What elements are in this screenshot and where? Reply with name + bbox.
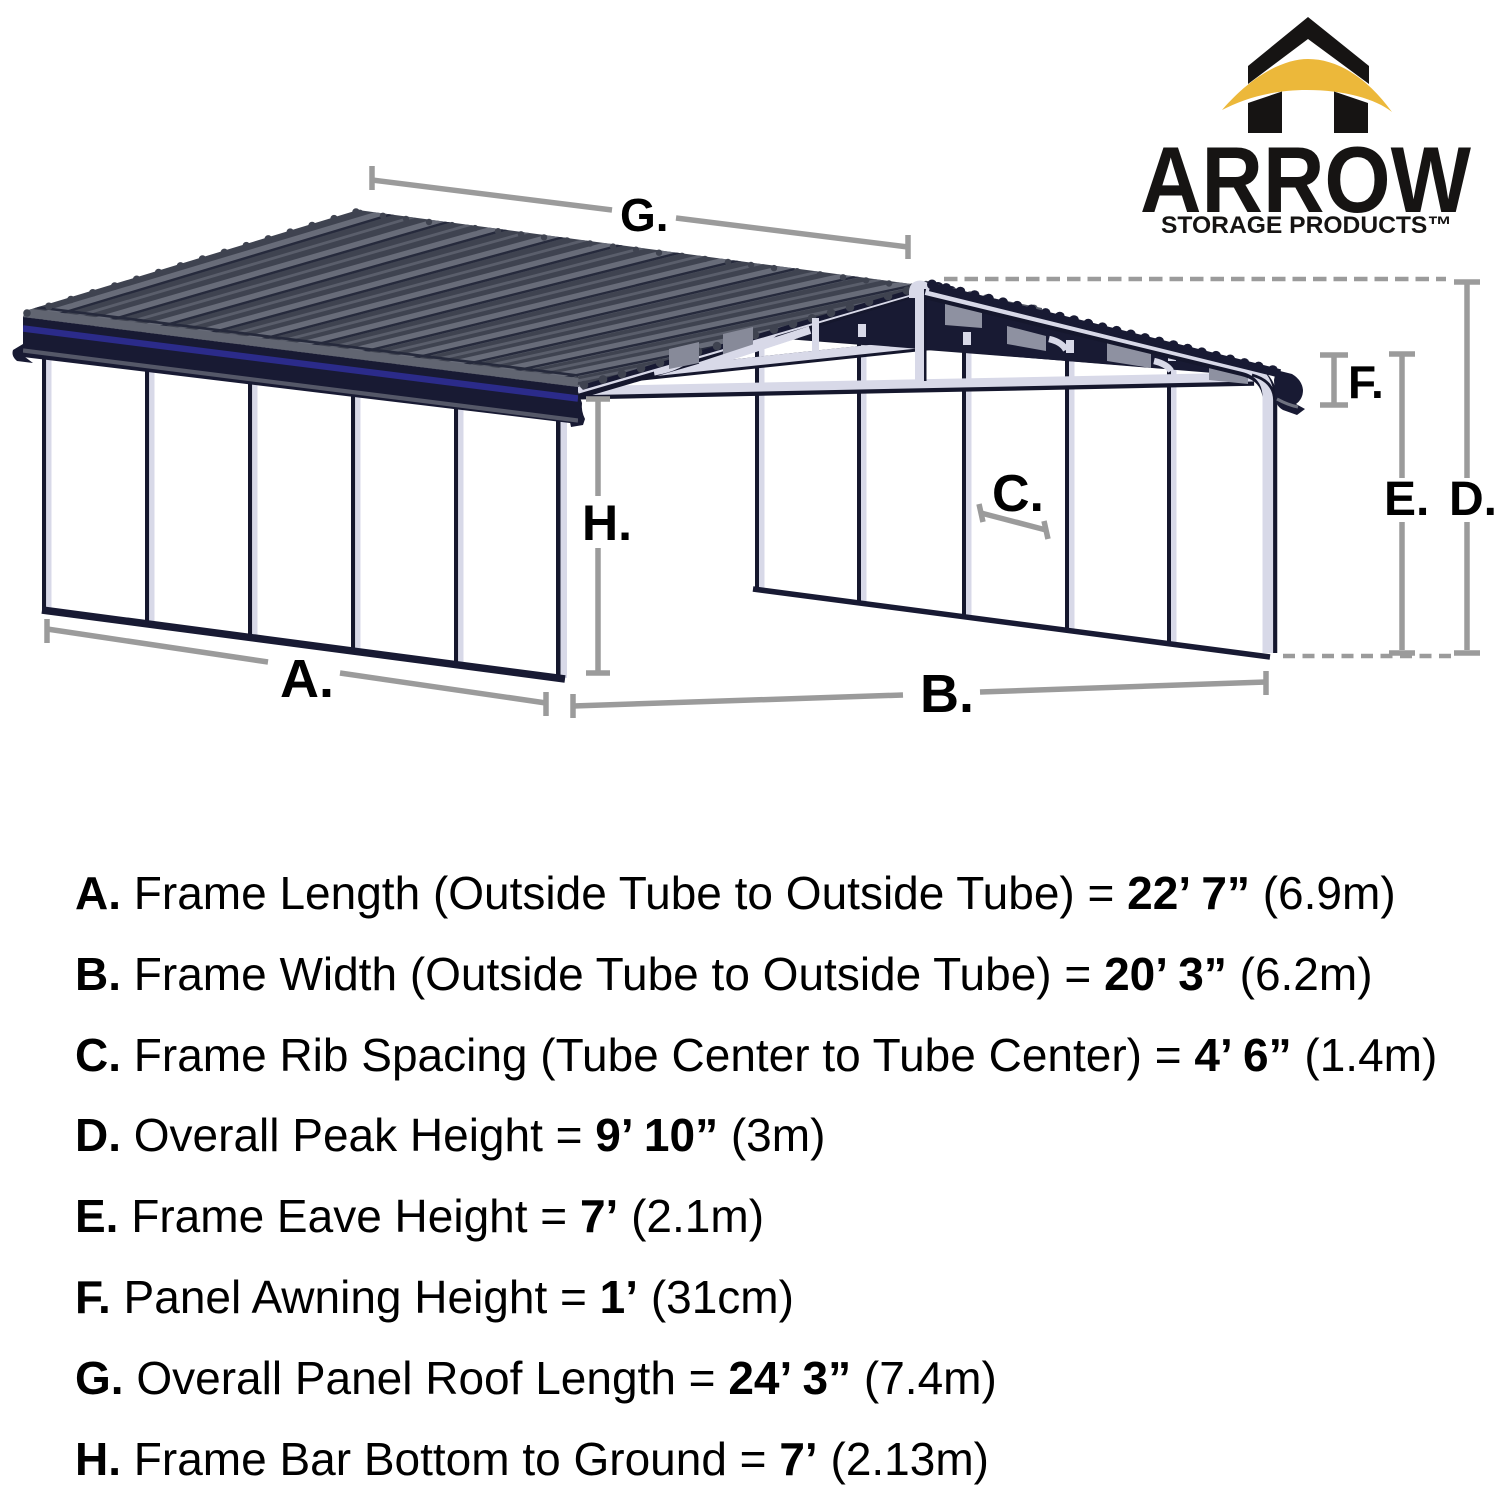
- svg-text:F.: F.: [1348, 356, 1384, 408]
- svg-text:A.: A.: [280, 649, 334, 709]
- svg-text:H.: H.: [582, 495, 632, 551]
- svg-text:E.: E.: [1384, 473, 1429, 526]
- svg-text:C.: C.: [992, 465, 1044, 523]
- svg-text:STORAGE PRODUCTS™: STORAGE PRODUCTS™: [1161, 212, 1452, 239]
- svg-text:G.: G.: [620, 189, 669, 241]
- svg-text:D.: D.: [1449, 473, 1497, 526]
- svg-text:B.: B.: [920, 664, 974, 724]
